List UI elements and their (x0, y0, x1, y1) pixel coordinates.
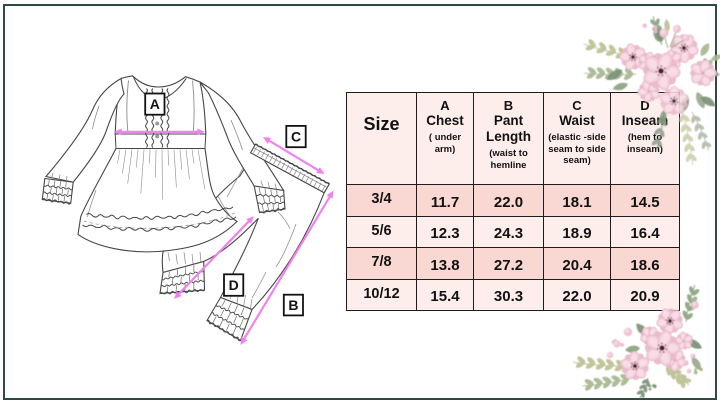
svg-text:A: A (150, 96, 160, 112)
svg-text:C: C (291, 129, 301, 145)
svg-text:B: B (288, 297, 298, 313)
svg-text:D: D (229, 277, 239, 293)
